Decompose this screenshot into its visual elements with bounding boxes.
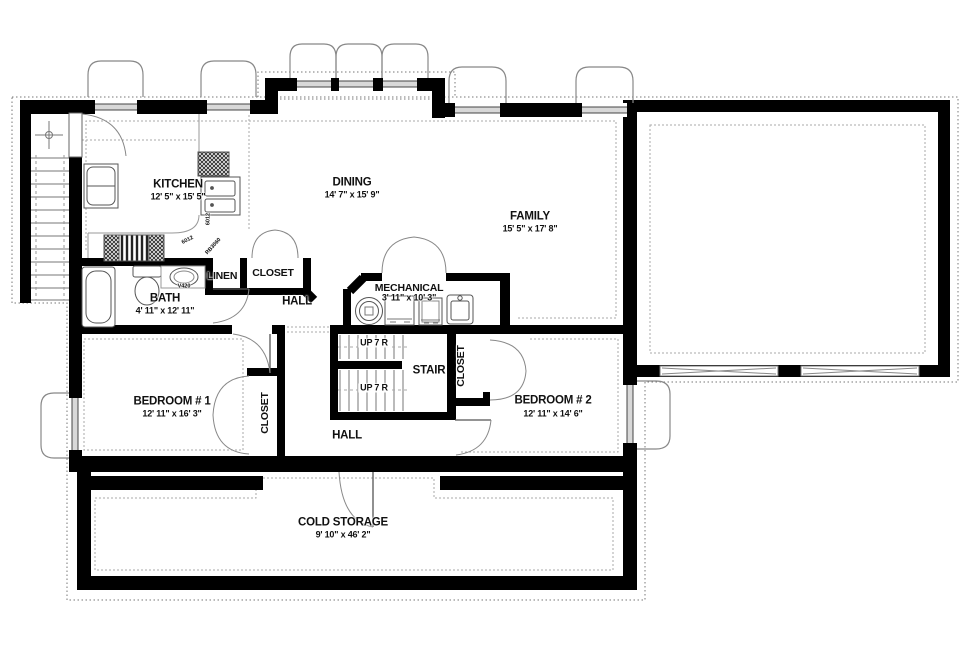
- kitchen-label: KITCHEN: [153, 179, 203, 191]
- upper-hall-label: HALL: [282, 296, 312, 308]
- exterior-stair: [31, 121, 69, 300]
- mechanical-dims: 3' 11" x 10' 3": [382, 294, 436, 303]
- stair-up-label-2: UP 7 R: [358, 384, 390, 393]
- kitchen-dims: 12' 5" x 15' 5": [151, 193, 206, 202]
- bedroom2-label: BEDROOM # 2: [514, 395, 591, 407]
- bedroom1-closet-label: CLOSET: [260, 392, 271, 433]
- bedroom1-label: BEDROOM # 1: [133, 396, 210, 408]
- vanity-sink-code: V420: [178, 284, 191, 290]
- floor-plan-drawing: [0, 0, 970, 647]
- wall-chamfers: [304, 278, 363, 300]
- family-label: FAMILY: [510, 211, 550, 223]
- hall-closet-label: CLOSET: [252, 268, 293, 279]
- floor-plan: KITCHEN 12' 5" x 15' 5" DINING 14' 7" x …: [0, 0, 970, 647]
- family-dims: 15' 5" x 17' 8": [503, 225, 558, 234]
- walls: [20, 78, 950, 590]
- toilet: [133, 266, 161, 277]
- dishwasher: [198, 152, 229, 176]
- bedroom1-dims: 12' 11" x 16' 3": [142, 410, 201, 419]
- dining-label: DINING: [332, 177, 371, 189]
- cabinet-code-side: 6012: [206, 213, 212, 225]
- stair-up-label-1: UP 7 R: [358, 339, 390, 348]
- overhang-dotted-boundary: [12, 72, 958, 600]
- bedroom2-dims: 12' 11" x 14' 6": [523, 410, 582, 419]
- cold-storage-label: COLD STORAGE: [298, 517, 388, 529]
- bath-dims: 4' 11" x 12' 11": [136, 307, 195, 316]
- cold-storage-dims: 9' 10" x 46' 2": [316, 531, 371, 540]
- bath-label: BATH: [150, 293, 180, 305]
- stair-label: STAIR: [413, 365, 446, 377]
- range: [119, 235, 149, 261]
- dining-dims: 14' 7" x 15' 9": [325, 191, 380, 200]
- drain-symbol: [35, 121, 63, 149]
- bedroom2-closet-label: CLOSET: [456, 345, 467, 386]
- bath-fixtures: [82, 266, 205, 327]
- lower-hall-label: HALL: [332, 430, 362, 442]
- linen-label: LINEN: [207, 271, 238, 282]
